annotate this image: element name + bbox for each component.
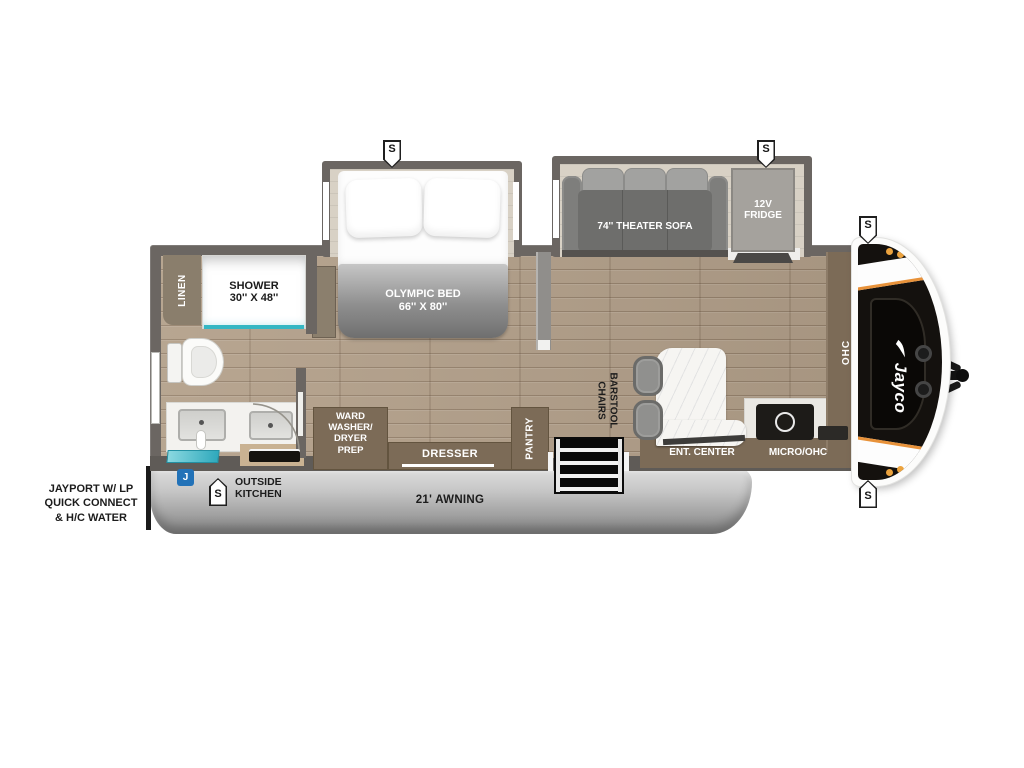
- bed-pillow-left: [345, 178, 423, 239]
- barstool-label-2: CHAIRS: [596, 372, 608, 428]
- bath-faucet-dot: [199, 420, 204, 425]
- awning-label: 21' AWNING: [300, 494, 600, 508]
- bed-slideout-window-left: [323, 182, 329, 240]
- burner-ring: [775, 412, 795, 432]
- fridge-vent: [733, 253, 793, 263]
- cooktop: [756, 404, 814, 440]
- linen-cabinet: LINEN: [163, 255, 201, 325]
- barstool-2: [633, 400, 663, 440]
- bed-slideout-window-right: [513, 182, 519, 240]
- bed-pillow-right: [423, 178, 501, 239]
- ward-washer-dryer-cabinet: WARD WASHER/ DRYER PREP: [313, 407, 388, 470]
- bath-pocket-door: [298, 392, 303, 436]
- barstool-label-1: BARSTOOL: [607, 372, 619, 428]
- brand-name: Jayco: [890, 363, 910, 414]
- pantry: PANTRY: [511, 407, 549, 470]
- tongue-jack-1: [915, 345, 932, 362]
- bedroom-divider-wall: [536, 252, 551, 350]
- speaker-tag-livingroom: S: [757, 140, 775, 168]
- hitch-ball: [956, 369, 969, 382]
- marker-light-3: [886, 469, 893, 476]
- bath-bedroom-wall-upper: [306, 252, 317, 334]
- theater-sofa-label: 74'' THEATER SOFA: [578, 221, 712, 233]
- shower-mat: [166, 450, 219, 463]
- shower-threshold: [204, 325, 304, 329]
- marker-light-1: [886, 248, 893, 255]
- pantry-label: PANTRY: [525, 417, 536, 459]
- floorplan-canvas: 21' AWNING LINEN SHOWER 30'' X 48'' WARD…: [0, 0, 1024, 768]
- ohc-label: OHC: [841, 339, 852, 364]
- rear-wall-window: [151, 352, 160, 424]
- toilet-tank: [167, 343, 182, 383]
- entry-steps: [554, 437, 624, 494]
- outside-kitchen-label-1: OUTSIDE: [235, 476, 329, 488]
- speaker-tag-front-top: S: [859, 216, 877, 244]
- linen-label: LINEN: [177, 274, 188, 307]
- bird-icon: [894, 339, 906, 359]
- ward-label-4: PREP: [314, 445, 387, 456]
- tongue-jack-2: [915, 381, 932, 398]
- speaker-tag-outside-kitchen: S: [209, 478, 227, 506]
- speaker-tag-front-bottom: S: [859, 480, 877, 508]
- jayport-marker: J: [177, 469, 194, 486]
- barstool-1: [633, 356, 663, 396]
- shower-label: SHOWER: [229, 280, 279, 292]
- fridge: 12V FRIDGE: [731, 168, 795, 252]
- micro-ohc-label: MICRO/OHC: [742, 447, 854, 459]
- jayport-label-1: JAYPORT W/ LP: [32, 482, 150, 496]
- outside-kitchen-door-arc: [249, 402, 301, 452]
- speaker-tag-bedroom: S: [383, 140, 401, 168]
- fridge-label-1: 12V: [754, 199, 772, 210]
- brand-logo: Jayco: [889, 328, 911, 424]
- marker-light-4: [897, 466, 904, 473]
- ward-label-2: WASHER/: [314, 422, 387, 433]
- barstool-chairs-label-wrap: BARSTOOL CHAIRS: [585, 355, 629, 445]
- jayport-marker-letter: J: [183, 472, 189, 483]
- jayport-label-2: QUICK CONNECT: [32, 496, 150, 510]
- outside-kitchen-griddle: [249, 449, 300, 462]
- kitchen-sink-small: [818, 426, 848, 440]
- shower: SHOWER 30'' X 48'': [202, 255, 306, 329]
- fridge-label-2: FRIDGE: [744, 210, 782, 221]
- outside-kitchen-label-2: KITCHEN: [235, 488, 329, 500]
- marker-light-2: [897, 251, 904, 258]
- bath-faucet: [196, 430, 206, 450]
- entry-door-jamb-right: [624, 452, 629, 471]
- divider-wall-foot: [538, 340, 550, 350]
- dresser-label: DRESSER: [389, 448, 511, 461]
- ward-label-3: DRYER: [314, 433, 387, 444]
- shower-size-label: 30'' X 48'': [230, 292, 278, 304]
- sofa-slideout-window-left: [553, 180, 559, 238]
- olympic-bed-label: OLYMPIC BED: [348, 288, 498, 301]
- ward-label-1: WARD: [314, 411, 387, 422]
- sofa-front-edge: [562, 250, 728, 257]
- entry-door-jamb-left: [548, 452, 553, 471]
- jayport-label-3: & H/C WATER: [32, 511, 150, 525]
- olympic-bed-size-label: 66'' X 80'': [348, 301, 498, 314]
- dresser-drawer-line: [402, 464, 494, 467]
